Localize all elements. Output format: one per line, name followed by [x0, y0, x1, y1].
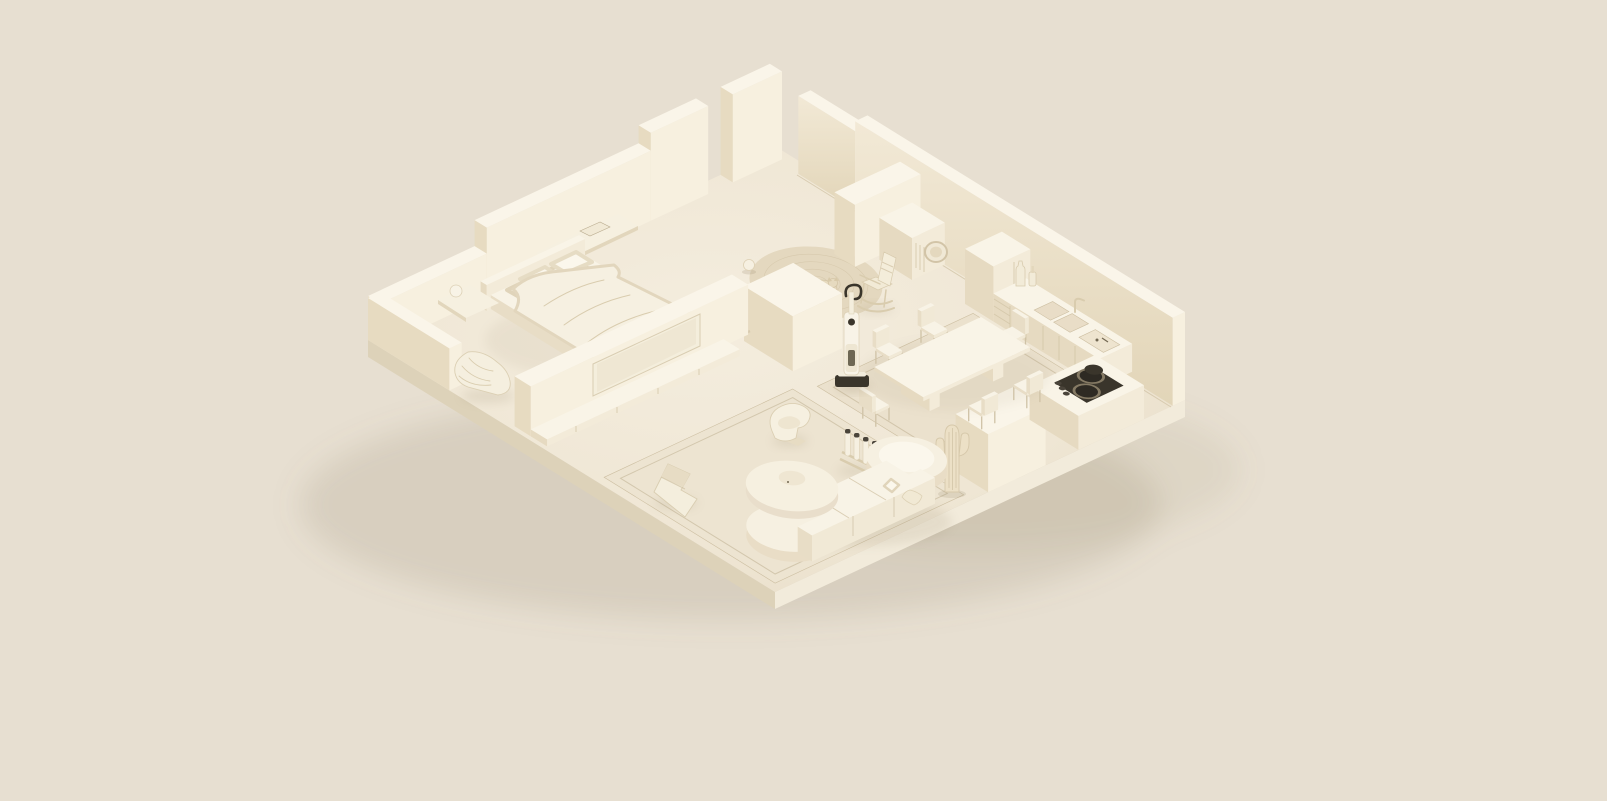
chair-back-bx-sw	[918, 309, 922, 327]
chair-back-bx-sw	[981, 398, 985, 416]
tv-wall-bx-sw	[515, 376, 531, 436]
chair-back-bx-se	[872, 395, 876, 413]
vacuum-base	[835, 375, 869, 387]
wall-stub-bx-sw	[835, 192, 855, 267]
wall-nw-segment-1-bx-sw	[721, 87, 733, 182]
chair-back-bx-sw	[873, 330, 877, 348]
utensil-1	[1096, 339, 1099, 342]
washer-door-glass	[930, 247, 942, 258]
ball	[744, 260, 755, 271]
chair-back-bx-sw	[1026, 377, 1030, 395]
render-canvas: Monochrome cream 3D isometric cutaway re…	[0, 0, 1607, 801]
wall-ne-segment-2-bx-se	[1173, 312, 1185, 406]
bottle-short	[1029, 272, 1036, 286]
isometric-apartment-render: Monochrome cream 3D isometric cutaway re…	[0, 0, 1607, 801]
tray-item	[787, 481, 789, 483]
chair-back-bx-se	[1025, 317, 1029, 335]
curved-lounge-chair	[770, 403, 810, 446]
vacuum-tank-window	[848, 350, 855, 366]
sphere-lamp	[450, 285, 462, 297]
white-ball	[742, 260, 756, 275]
vacuum-display	[848, 319, 855, 326]
bottle-neck	[1032, 266, 1034, 273]
vacuum-pole	[849, 292, 854, 314]
